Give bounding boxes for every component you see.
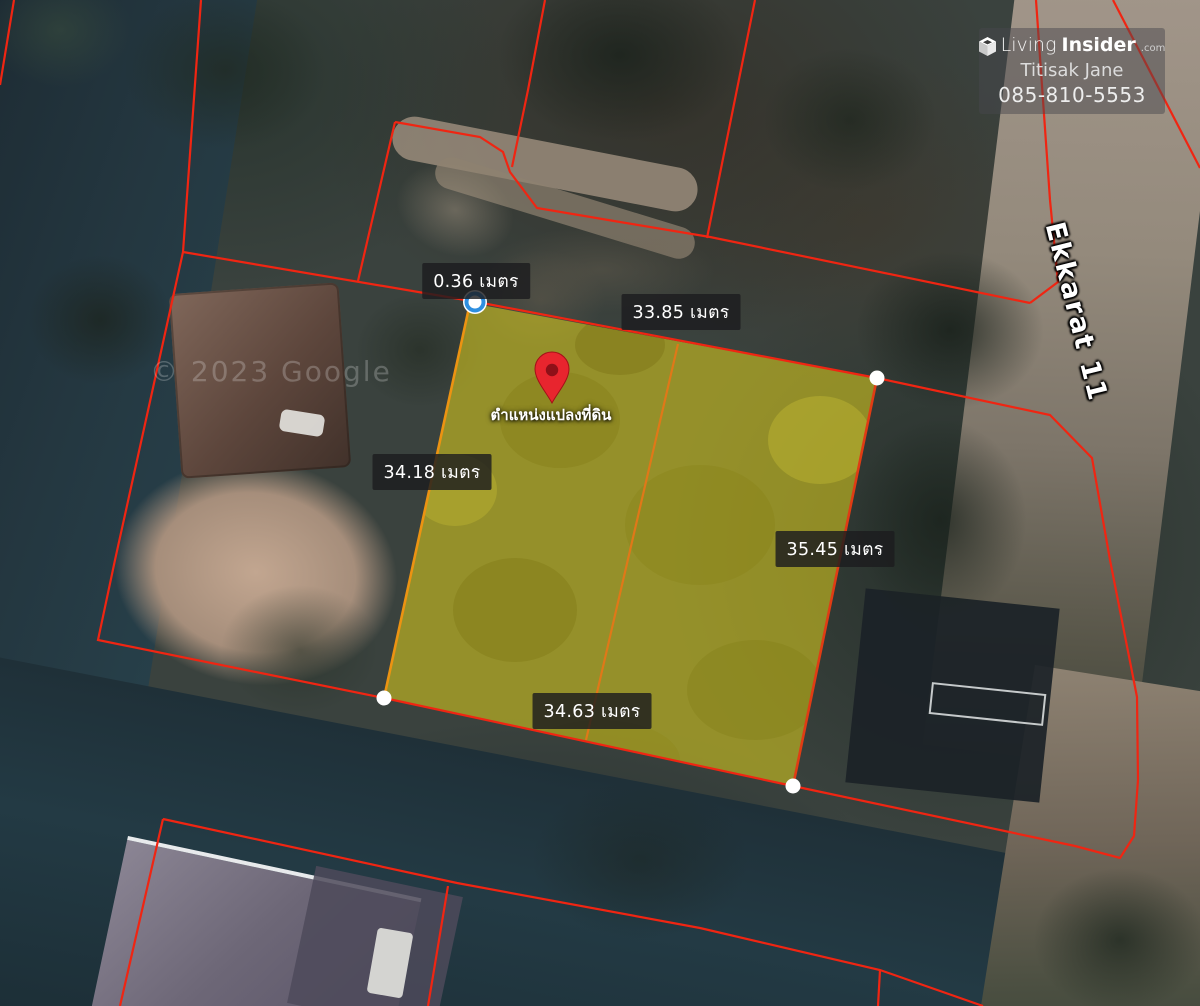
boundary-stair-vertical <box>358 122 395 281</box>
measurement-chip-west: 34.18 เมตร <box>373 454 492 490</box>
parcel-overlay <box>0 0 1200 1006</box>
agent-phone: 085-810-5553 <box>998 83 1146 107</box>
map-credit-watermark: © 2023 Google <box>150 355 392 388</box>
boundary-bottom-parcel-top <box>163 819 983 1006</box>
vertex-dot <box>377 691 392 706</box>
boundary-far-left <box>0 0 14 85</box>
vertex-dot <box>870 371 885 386</box>
boundary-bottom-parcel-left <box>120 819 163 1006</box>
livinginsider-cube-icon <box>979 37 996 56</box>
land-plot-listing-image: 0.36 เมตร 33.85 เมตร 34.18 เมตร 35.45 เม… <box>0 0 1200 1006</box>
measurement-chip-north-offset: 0.36 เมตร <box>422 263 530 299</box>
boundary-top-right-a <box>707 0 755 238</box>
boundary-bottom-spur-a <box>428 886 448 1006</box>
measurement-chip-east: 35.45 เมตร <box>776 531 895 567</box>
boundary-bottom-spur-b <box>878 970 880 1006</box>
measurement-chip-north: 33.85 เมตร <box>622 294 741 330</box>
brand-name-bold: Insider <box>1062 35 1136 57</box>
brand-logo-row: LivingInsider.com <box>979 35 1166 57</box>
boundary-top-middle <box>512 0 545 167</box>
pin-caption: ตำแหน่งแปลงที่ดิน <box>491 403 612 427</box>
agent-name: Titisak Jane <box>1021 60 1124 81</box>
brand-name-prefix: Living <box>1001 35 1057 57</box>
vertex-dot <box>786 779 801 794</box>
brand-tld: .com <box>1141 43 1166 55</box>
agent-contact-card: LivingInsider.com Titisak Jane 085-810-5… <box>979 28 1165 114</box>
measurement-chip-south: 34.63 เมตร <box>533 693 652 729</box>
